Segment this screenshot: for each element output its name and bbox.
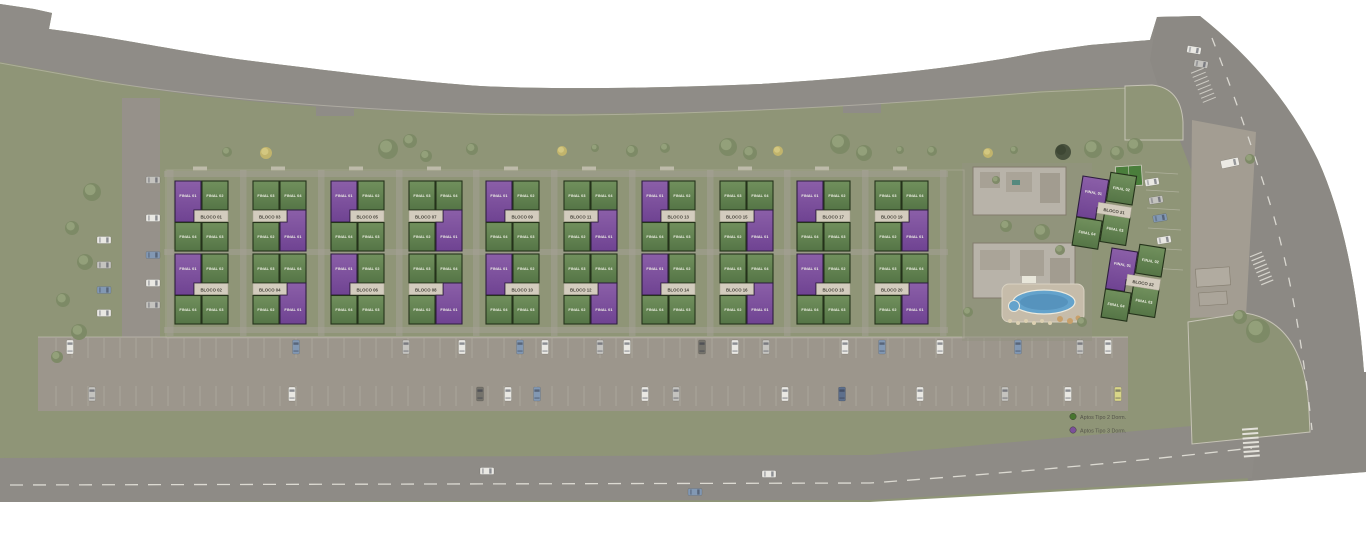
car — [597, 340, 604, 354]
unit-label: FINAL 03 — [413, 194, 430, 198]
bloco-label: BLOCO 14 — [667, 287, 689, 292]
block-bloco-07: FINAL 03FINAL 04FINAL 02FINAL 01BLOCO 07 — [409, 181, 462, 251]
car — [624, 340, 631, 354]
bloco-label: BLOCO 10 — [511, 287, 533, 292]
game-table — [1012, 180, 1020, 185]
unit-label: FINAL 03 — [879, 194, 896, 198]
car — [1002, 387, 1009, 401]
tree — [1127, 138, 1143, 154]
unit-label: FINAL 03 — [206, 235, 223, 239]
tree-yellow — [983, 148, 993, 158]
car — [542, 340, 549, 354]
clubhouse1-room — [1040, 173, 1060, 203]
unit-label: FINAL 03 — [879, 267, 896, 271]
unit-label: FINAL 04 — [179, 235, 197, 239]
tree — [660, 143, 670, 153]
block-bloco-05: FINAL 01FINAL 02FINAL 04FINAL 03BLOCO 05 — [331, 181, 384, 251]
car — [67, 340, 74, 354]
unit-label: FINAL 04 — [646, 235, 664, 239]
car — [289, 387, 296, 401]
tree — [743, 146, 757, 160]
tree — [992, 176, 1000, 184]
legend-tipo2-dot — [1070, 413, 1076, 419]
car — [97, 262, 111, 269]
car — [480, 468, 494, 475]
unit-label: FINAL 04 — [595, 194, 613, 198]
tree — [927, 146, 937, 156]
unit-label: FINAL 01 — [335, 267, 352, 271]
tree — [420, 150, 432, 162]
block-bloco-04: FINAL 03FINAL 04FINAL 02FINAL 01BLOCO 04 — [253, 254, 306, 324]
unit-label: FINAL 02 — [517, 267, 534, 271]
unit-label: FINAL 03 — [568, 267, 585, 271]
unit-label: FINAL 04 — [490, 235, 508, 239]
bloco-label: BLOCO 13 — [667, 214, 689, 219]
unit-label: FINAL 04 — [335, 308, 353, 312]
block-bloco-14: FINAL 01FINAL 02FINAL 04FINAL 03BLOCO 14 — [642, 254, 695, 324]
tree — [65, 221, 79, 235]
car — [782, 387, 789, 401]
central-parking-strip — [38, 337, 1128, 411]
unit-label: FINAL 01 — [595, 235, 612, 239]
car — [937, 340, 944, 354]
unit-label: FINAL 02 — [206, 194, 223, 198]
car — [459, 340, 466, 354]
bloco-label: BLOCO 06 — [356, 287, 378, 292]
unit-label: FINAL 03 — [828, 235, 845, 239]
service-structure-1 — [1195, 267, 1230, 287]
unit-label: FINAL 01 — [179, 267, 196, 271]
car — [1015, 340, 1022, 354]
block-bloco-09: FINAL 01FINAL 02FINAL 04FINAL 03BLOCO 09 — [486, 181, 539, 251]
block-bloco-15: FINAL 03FINAL 04FINAL 02FINAL 01BLOCO 15 — [720, 181, 773, 251]
unit-label: FINAL 04 — [440, 194, 458, 198]
tree — [1034, 224, 1050, 240]
car — [762, 471, 776, 478]
unit-label: FINAL 02 — [413, 235, 430, 239]
unit-label: FINAL 02 — [362, 194, 379, 198]
block-bloco-21: FINAL 01FINAL 02FINAL 04FINAL 03BLOCO 21 — [1072, 168, 1137, 253]
unit-label: FINAL 03 — [257, 194, 274, 198]
unit-label: FINAL 03 — [206, 308, 223, 312]
unit-label: FINAL 01 — [801, 267, 818, 271]
unit-label: FINAL 02 — [257, 308, 274, 312]
unit-label: FINAL 04 — [490, 308, 508, 312]
tree-yellow — [773, 146, 783, 156]
unit-label: FINAL 03 — [517, 308, 534, 312]
car — [146, 280, 160, 287]
layby-notch-1 — [316, 101, 354, 116]
unit-label: FINAL 01 — [751, 308, 768, 312]
car — [1115, 387, 1122, 401]
unit-label: FINAL 02 — [413, 308, 430, 312]
unit-label: FINAL 03 — [362, 308, 379, 312]
block-bloco-03: FINAL 03FINAL 04FINAL 02FINAL 01BLOCO 03 — [253, 181, 306, 251]
car — [732, 340, 739, 354]
car — [97, 237, 111, 244]
unit-label: FINAL 02 — [724, 308, 741, 312]
car — [505, 387, 512, 401]
service-structure-2 — [1199, 291, 1228, 306]
unit-label: FINAL 01 — [751, 235, 768, 239]
bloco-label: BLOCO 05 — [356, 214, 378, 219]
unit-label: FINAL 01 — [335, 194, 352, 198]
car — [403, 340, 410, 354]
unit-label: FINAL 02 — [828, 267, 845, 271]
tree — [1110, 146, 1124, 160]
unit-label: FINAL 02 — [828, 194, 845, 198]
unit-label: FINAL 03 — [362, 235, 379, 239]
legend-tipo2-label: Aptos Tipo 2 Dorm. — [1080, 415, 1126, 421]
tree — [1000, 220, 1012, 232]
unit-label: FINAL 03 — [568, 194, 585, 198]
unit-label: FINAL 04 — [751, 194, 769, 198]
bloco-label: BLOCO 03 — [259, 214, 281, 219]
unit-label: FINAL 01 — [595, 308, 612, 312]
tree — [51, 351, 63, 363]
tree-yellow — [557, 146, 567, 156]
car — [146, 302, 160, 309]
unit-label: FINAL 02 — [673, 267, 690, 271]
car — [477, 387, 484, 401]
unit-label: FINAL 02 — [673, 194, 690, 198]
block-bloco-13: FINAL 01FINAL 02FINAL 04FINAL 03BLOCO 13 — [642, 181, 695, 251]
car — [1077, 340, 1084, 354]
unit-label: FINAL 02 — [879, 308, 896, 312]
path-strip — [164, 327, 948, 333]
unit-label: FINAL 04 — [801, 308, 819, 312]
unit-label: FINAL 01 — [906, 235, 923, 239]
kids-pool — [1009, 301, 1020, 312]
bloco-label: BLOCO 01 — [200, 214, 222, 219]
block-bloco-06: FINAL 01FINAL 02FINAL 04FINAL 03BLOCO 06 — [331, 254, 384, 324]
pergola — [1022, 276, 1036, 283]
tree — [222, 147, 232, 157]
unit-label: FINAL 04 — [179, 308, 197, 312]
car — [879, 340, 886, 354]
tree — [466, 143, 478, 155]
unit-label: FINAL 04 — [906, 194, 924, 198]
unit-label: FINAL 03 — [257, 267, 274, 271]
unit-label: FINAL 02 — [362, 267, 379, 271]
block-bloco-18: FINAL 01FINAL 02FINAL 04FINAL 03BLOCO 18 — [797, 254, 850, 324]
bloco-label: BLOCO 17 — [822, 214, 844, 219]
block-bloco-19: FINAL 03FINAL 04FINAL 02FINAL 01BLOCO 19 — [875, 181, 928, 251]
tree — [378, 139, 398, 159]
unit-label: FINAL 01 — [440, 235, 457, 239]
tree-yellow — [260, 147, 272, 159]
unit-label: FINAL 01 — [646, 194, 663, 198]
unit-label: FINAL 01 — [284, 235, 301, 239]
tree — [77, 254, 93, 270]
unit-label: FINAL 02 — [257, 235, 274, 239]
tree — [591, 144, 599, 152]
unit-label: FINAL 02 — [206, 267, 223, 271]
bloco-label: BLOCO 19 — [881, 214, 903, 219]
car — [1105, 340, 1112, 354]
bloco-label: BLOCO 09 — [511, 214, 533, 219]
car — [517, 340, 524, 354]
site-plan-page: FINAL 01FINAL 02FINAL 04FINAL 03BLOCO 01… — [0, 0, 1366, 557]
car — [146, 252, 160, 259]
tree — [626, 145, 638, 157]
site-plan-canvas: FINAL 01FINAL 02FINAL 04FINAL 03BLOCO 01… — [0, 0, 1366, 557]
block-bloco-20: FINAL 03FINAL 04FINAL 02FINAL 01BLOCO 20 — [875, 254, 928, 324]
path-strip — [164, 171, 948, 177]
car — [1065, 387, 1072, 401]
bloco-label: BLOCO 12 — [570, 287, 592, 292]
tree — [856, 145, 872, 161]
large-tree-core — [1056, 145, 1066, 155]
unit-label: FINAL 01 — [179, 194, 196, 198]
bloco-label: BLOCO 07 — [415, 214, 437, 219]
car — [89, 387, 96, 401]
block-bloco-10: FINAL 01FINAL 02FINAL 04FINAL 03BLOCO 10 — [486, 254, 539, 324]
car — [688, 489, 702, 496]
tree — [1055, 245, 1065, 255]
unit-label: FINAL 01 — [646, 267, 663, 271]
car — [839, 387, 846, 401]
tree — [1077, 317, 1087, 327]
tree — [1246, 319, 1270, 343]
unit-label: FINAL 04 — [595, 267, 613, 271]
unit-label: FINAL 01 — [490, 194, 507, 198]
tree — [963, 307, 973, 317]
block-bloco-22: FINAL 01FINAL 02FINAL 04FINAL 03BLOCO 22 — [1101, 240, 1166, 325]
tree — [56, 293, 70, 307]
tree — [403, 134, 417, 148]
tree — [719, 138, 737, 156]
bloco-label: BLOCO 15 — [726, 214, 748, 219]
unit-label: FINAL 01 — [284, 308, 301, 312]
unit-label: FINAL 04 — [801, 235, 819, 239]
unit-label: FINAL 04 — [335, 235, 353, 239]
car — [534, 387, 541, 401]
tree — [83, 183, 101, 201]
unit-label: FINAL 04 — [284, 267, 302, 271]
unit-label: FINAL 02 — [724, 235, 741, 239]
unit-label: FINAL 02 — [568, 235, 585, 239]
unit-label: FINAL 04 — [284, 194, 302, 198]
unit-label: FINAL 03 — [828, 308, 845, 312]
unit-label: FINAL 03 — [673, 308, 690, 312]
unit-label: FINAL 03 — [724, 194, 741, 198]
car — [146, 177, 160, 184]
bloco-label: BLOCO 08 — [415, 287, 437, 292]
car — [293, 340, 300, 354]
tree — [1245, 154, 1255, 164]
block-bloco-16: FINAL 03FINAL 04FINAL 02FINAL 01BLOCO 16 — [720, 254, 773, 324]
unit-label: FINAL 02 — [517, 194, 534, 198]
unit-label: FINAL 02 — [879, 235, 896, 239]
tree — [896, 146, 904, 154]
clubhouse2-room — [1020, 250, 1044, 276]
unit-label: FINAL 01 — [440, 308, 457, 312]
bloco-label: BLOCO 02 — [200, 287, 222, 292]
car — [642, 387, 649, 401]
bloco-label: BLOCO 11 — [570, 214, 592, 219]
car — [842, 340, 849, 354]
tree — [1084, 140, 1102, 158]
unit-label: FINAL 01 — [906, 308, 923, 312]
bloco-label: BLOCO 16 — [726, 287, 748, 292]
car — [97, 310, 111, 317]
block-bloco-12: FINAL 03FINAL 04FINAL 02FINAL 01BLOCO 12 — [564, 254, 617, 324]
block-bloco-17: FINAL 01FINAL 02FINAL 04FINAL 03BLOCO 17 — [797, 181, 850, 251]
tree — [830, 134, 850, 154]
block-bloco-01: FINAL 01FINAL 02FINAL 04FINAL 03BLOCO 01 — [175, 181, 228, 251]
car — [146, 215, 160, 222]
legend-tipo3-dot — [1070, 427, 1076, 433]
unit-label: FINAL 03 — [517, 235, 534, 239]
bloco-label: BLOCO 20 — [881, 287, 903, 292]
car — [673, 387, 680, 401]
unit-label: FINAL 04 — [440, 267, 458, 271]
pool-deep-end — [1020, 294, 1068, 310]
car — [699, 340, 706, 354]
block-bloco-02: FINAL 01FINAL 02FINAL 04FINAL 03BLOCO 02 — [175, 254, 228, 324]
clubhouse2-room — [980, 250, 1010, 270]
unit-label: FINAL 03 — [413, 267, 430, 271]
tree — [1233, 310, 1247, 324]
car — [917, 387, 924, 401]
car — [763, 340, 770, 354]
bloco-label: BLOCO 04 — [259, 287, 281, 292]
unit-label: FINAL 03 — [724, 267, 741, 271]
unit-label: FINAL 04 — [646, 308, 664, 312]
unit-label: FINAL 04 — [751, 267, 769, 271]
unit-label: FINAL 03 — [673, 235, 690, 239]
block-bloco-08: FINAL 03FINAL 04FINAL 02FINAL 01BLOCO 08 — [409, 254, 462, 324]
unit-label: FINAL 01 — [490, 267, 507, 271]
legend-tipo3-label: Aptos Tipo 3 Dorm. — [1080, 429, 1126, 435]
tree — [1010, 146, 1018, 154]
unit-label: FINAL 02 — [568, 308, 585, 312]
tree — [71, 324, 87, 340]
block-bloco-11: FINAL 03FINAL 04FINAL 02FINAL 01BLOCO 11 — [564, 181, 617, 251]
right-parking-lot — [1190, 120, 1256, 318]
bloco-label: BLOCO 18 — [822, 287, 844, 292]
unit-label: FINAL 01 — [801, 194, 818, 198]
unit-label: FINAL 04 — [906, 267, 924, 271]
car — [97, 287, 111, 294]
